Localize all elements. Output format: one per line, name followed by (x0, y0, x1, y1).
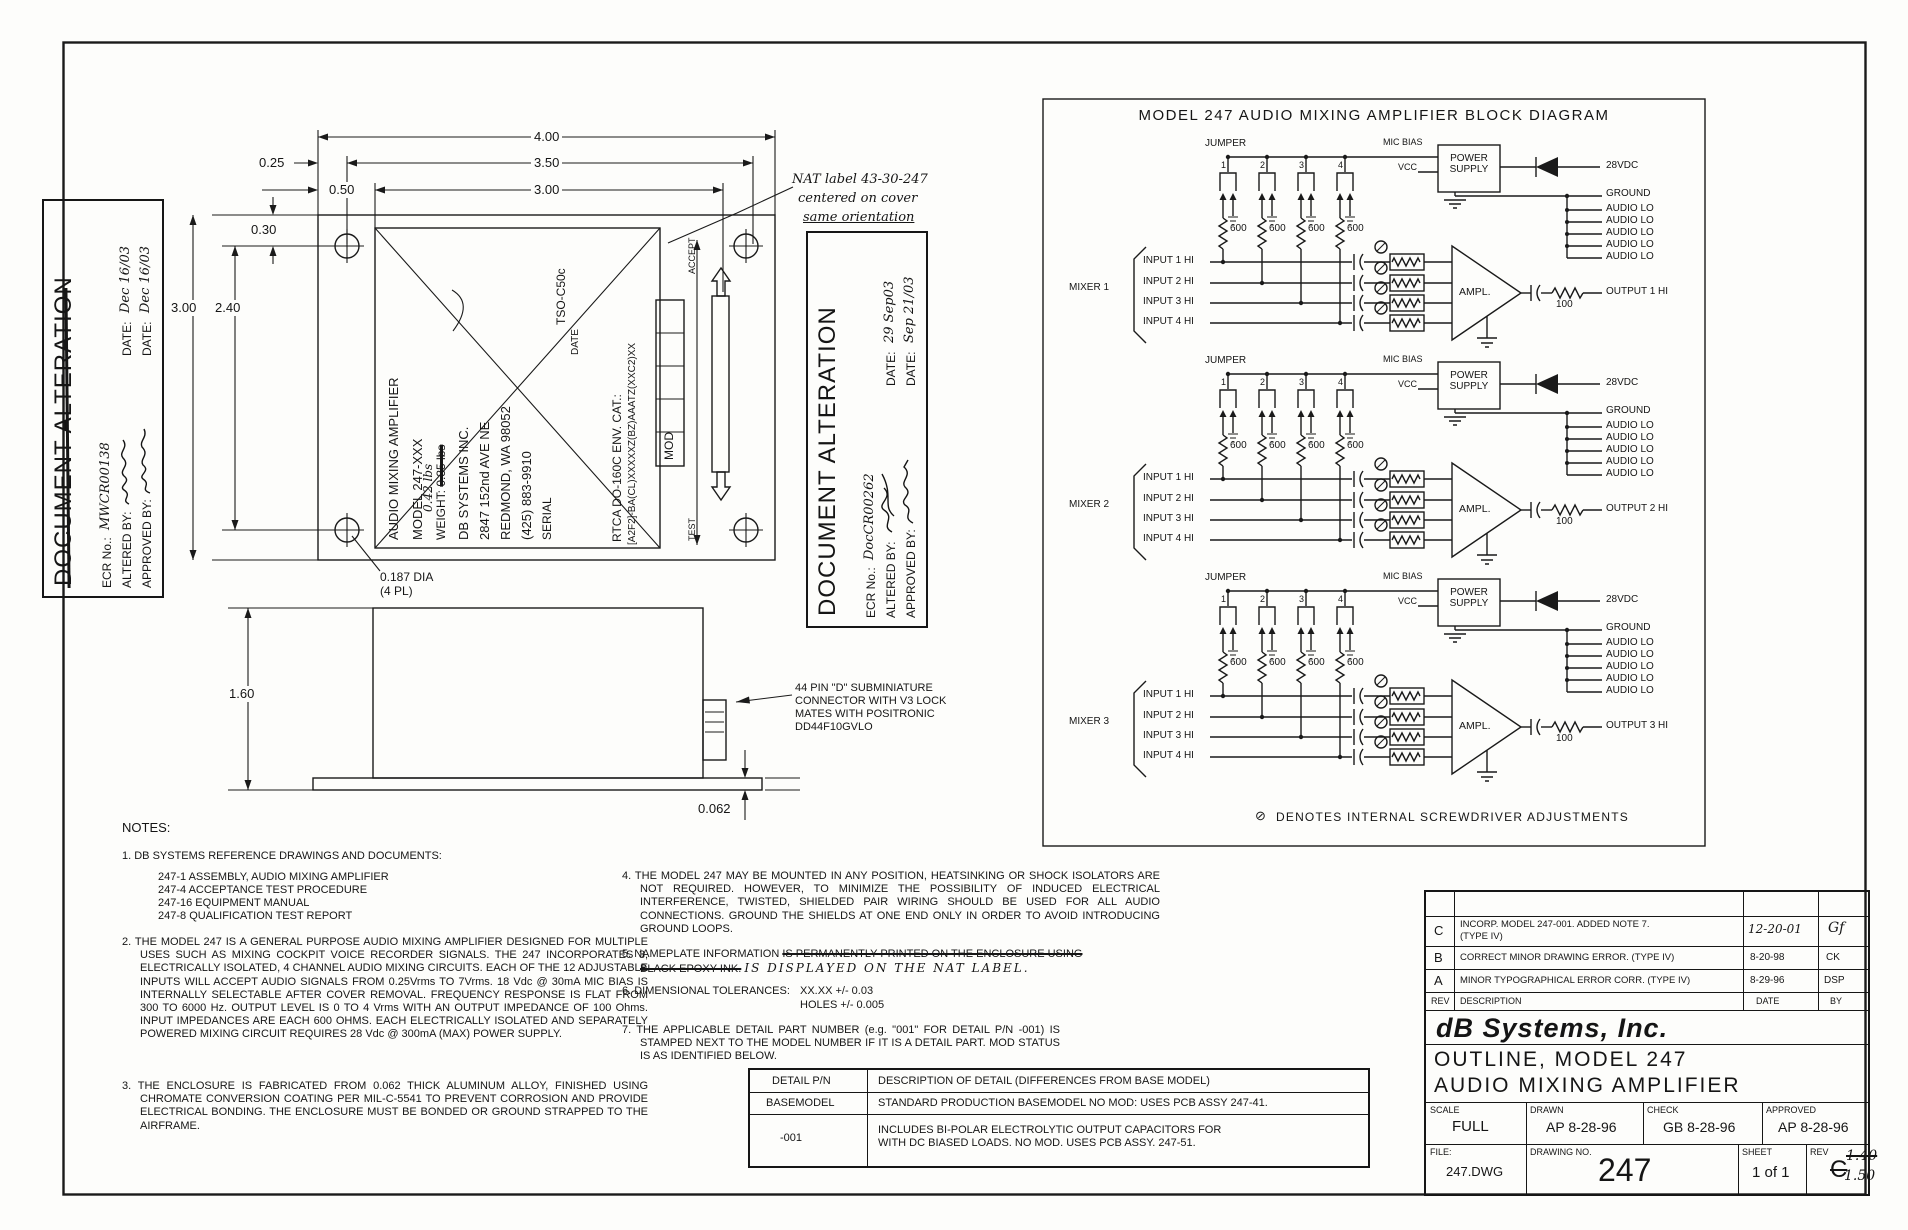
altered-by-label: ALTERED BY: (884, 542, 898, 618)
jumper-1-number: 1 (1221, 594, 1226, 605)
power-supply-box-label: POWERSUPPLY (1439, 587, 1499, 609)
mic-bias-label: MIC BIAS (1383, 354, 1423, 365)
input-2-label: INPUT 2 HI (1143, 276, 1194, 288)
jumper-4-number: 4 (1338, 594, 1343, 605)
check-value: GB 8-28-96 (1663, 1119, 1735, 1136)
rev-by: Gf (1828, 920, 1844, 937)
nat-note-line3: same orientation (803, 210, 914, 226)
rev-by: DSP (1824, 975, 1845, 987)
jumper-label: JUMPER (1205, 355, 1246, 367)
dim-4-00: 4.00 (531, 129, 562, 145)
power-label: POWER (1450, 153, 1488, 164)
accept-label: ACCEPT (687, 237, 698, 274)
plate-address: 2847 152nd AVE NE (477, 422, 493, 540)
notes-heading: NOTES: (122, 820, 170, 836)
note-3: 3. THE ENCLOSURE IS FABRICATED FROM 0.06… (122, 1080, 648, 1133)
plate-weight-struck: 0.35 lbs (434, 445, 448, 487)
input-4-label: INPUT 4 HI (1143, 316, 1194, 328)
date-altered: Dec 16/03 (118, 246, 134, 313)
dim-0-25: 0.25 (256, 155, 287, 171)
approved-by-label: APPROVED BY: (904, 529, 918, 618)
input-1-label: INPUT 1 HI (1143, 689, 1194, 701)
resistor-600-label: 600 (1230, 440, 1247, 452)
titleblock-line (1762, 1102, 1763, 1144)
note-6-tol-b: HOLES +/- 0.005 (800, 999, 884, 1012)
titleblock-line (1526, 1144, 1527, 1194)
sheet-label: SHEET (1742, 1147, 1772, 1158)
hole-qty-note: (4 PL) (380, 584, 413, 598)
ground-label: GROUND (1606, 622, 1650, 634)
input-4-label: INPUT 4 HI (1143, 533, 1194, 545)
jumper-1-number: 1 (1221, 377, 1226, 388)
audio-lo-label: AUDIO LO (1606, 444, 1654, 456)
rev-date: 8-29-96 (1750, 975, 1784, 987)
input-2-label: INPUT 2 HI (1143, 710, 1194, 722)
plate-tso: TSO-C50c (554, 268, 568, 325)
note-5-prefix: 5. NAMEPLATE INFORMATION (622, 948, 782, 960)
audio-lo-label: AUDIO LO (1606, 456, 1654, 468)
titleblock-line (1526, 1102, 1527, 1144)
note-4: 4. THE MODEL 247 MAY BE MOUNTED IN ANY P… (622, 870, 1160, 936)
plate-company: DB SYSTEMS INC. (456, 427, 472, 540)
altered-signature-icon (118, 436, 134, 506)
denotes-note: DENOTES INTERNAL SCREWDRIVER ADJUSTMENTS (1276, 810, 1629, 824)
vcc-label: VCC (1398, 162, 1417, 173)
supply-label: SUPPLY (1450, 381, 1489, 392)
rev-date: 8-20-98 (1750, 952, 1784, 964)
note-5-handwritten: IS DISPLAYED ON THE NAT LABEL. (744, 961, 1029, 975)
approved-by-label: APPROVED BY: (140, 499, 154, 588)
ampl-label: AMPL. (1459, 720, 1491, 733)
detail-pn-table: DETAIL P/N DESCRIPTION OF DETAIL (DIFFER… (748, 1068, 1370, 1168)
detail-desc-header: DESCRIPTION OF DETAIL (DIFFERENCES FROM … (878, 1075, 1210, 1088)
mic-bias-label: MIC BIAS (1383, 571, 1423, 582)
date-label: DATE: (904, 352, 918, 386)
jumper-4-number: 4 (1338, 377, 1343, 388)
approved-value: AP 8-28-96 (1778, 1119, 1849, 1136)
document-alteration-stamp-2: DOCUMENT ALTERATION ECR No.: DocCR00262 … (806, 231, 928, 628)
power-supply-box-label: POWERSUPPLY (1439, 370, 1499, 392)
side-view-drawing (313, 608, 792, 790)
table-divider (867, 1070, 868, 1166)
desc-col-header: DESCRIPTION (1460, 996, 1522, 1007)
resistor-100-label: 100 (1556, 299, 1573, 311)
mixer-circuit-1 (1134, 145, 1602, 347)
plate-env-cat-code: [A2F2]-BA(CL)XXXXXZ(BZ)AAATZ(XXC2)XX (627, 343, 639, 545)
titleblock-line (1643, 1102, 1644, 1144)
resistor-600-label: 600 (1347, 440, 1364, 452)
mixer-name: MIXER 1 (1069, 282, 1109, 294)
rev-letter: B (1434, 950, 1443, 966)
rev-letter: A (1434, 973, 1443, 989)
input-1-label: INPUT 1 HI (1143, 472, 1194, 484)
screwdriver-adjust-icon: ⊘ (1255, 808, 1266, 824)
rev-desc: MINOR TYPOGRAPHICAL ERROR CORR. (TYPE IV… (1460, 975, 1690, 986)
block-diagram-title: MODEL 247 AUDIO MIXING AMPLIFIER BLOCK D… (1043, 107, 1705, 125)
mixer-name: MIXER 2 (1069, 499, 1109, 511)
dim-0-062: 0.062 (698, 801, 731, 817)
table-divider (750, 1114, 1368, 1115)
audio-lo-label: AUDIO LO (1606, 239, 1654, 251)
dim-1-60: 1.60 (226, 686, 257, 702)
note-1-item: 247-4 ACCEPTANCE TEST PROCEDURE (158, 884, 367, 897)
rev-desc: INCORP. MODEL 247-001. ADDED NOTE 7. (1460, 919, 1650, 930)
test-label: TEST (687, 518, 698, 541)
resistor-600-label: 600 (1308, 657, 1325, 669)
drawing-title-line1: OUTLINE, MODEL 247 (1434, 1047, 1687, 1072)
nat-note-line1: NAT label 43-30-247 (792, 172, 928, 188)
note-1-item: 247-8 QUALIFICATION TEST REPORT (158, 910, 352, 923)
date-col-header: DATE (1756, 996, 1779, 1007)
note-2: 2. THE MODEL 247 IS A GENERAL PURPOSE AU… (122, 936, 648, 1042)
resistor-600-label: 600 (1308, 440, 1325, 452)
rev-desc-2: (TYPE IV) (1460, 931, 1503, 942)
dim-3-00-height: 3.00 (168, 300, 199, 316)
nat-note-line2: centered on cover (798, 191, 917, 207)
jumper-2-number: 2 (1260, 377, 1265, 388)
jumper-label: JUMPER (1205, 572, 1246, 584)
titleblock-line (1426, 916, 1868, 917)
detail-pn-header: DETAIL P/N (772, 1075, 831, 1088)
titleblock-line (1806, 1144, 1807, 1194)
drawing-sheet: DOCUMENT ALTERATION ECR No.: MWCR00138 A… (0, 0, 1908, 1230)
date-label: DATE: (140, 322, 154, 356)
ampl-label: AMPL. (1459, 286, 1491, 299)
plate-mod-label: MOD (662, 432, 676, 460)
ampl-label: AMPL. (1459, 503, 1491, 516)
power-label: POWER (1450, 587, 1488, 598)
audio-lo-label: AUDIO LO (1606, 203, 1654, 215)
connector-note-line2: CONNECTOR WITH V3 LOCK (795, 695, 946, 708)
note-1-head: 1. DB SYSTEMS REFERENCE DRAWINGS AND DOC… (122, 850, 442, 863)
audio-lo-label: AUDIO LO (1606, 637, 1654, 649)
titleblock-line (1738, 1144, 1739, 1194)
input-3-label: INPUT 3 HI (1143, 296, 1194, 308)
approved-label: APPROVED (1766, 1105, 1816, 1116)
audio-lo-label: AUDIO LO (1606, 432, 1654, 444)
dim-3-00-width: 3.00 (531, 182, 562, 198)
drawing-no-value: 247 (1598, 1151, 1651, 1189)
rev-letter: C (1434, 923, 1443, 939)
note-5-struck-1: IS PERMANENTLY PRINTED ON THE ENCLOSURE … (782, 948, 1082, 960)
check-label: CHECK (1647, 1105, 1679, 1116)
by-col-header: BY (1830, 996, 1842, 1007)
date-altered: 29 Sep03 (882, 281, 898, 343)
titleblock-line (1818, 892, 1819, 1010)
audio-lo-label: AUDIO LO (1606, 227, 1654, 239)
titleblock-line (1743, 892, 1744, 1010)
date-approved: Dec 16/03 (138, 246, 154, 313)
ecr-label: ECR No.: (864, 567, 878, 618)
file-value: 247.DWG (1446, 1164, 1503, 1180)
drawn-value: AP 8-28-96 (1546, 1119, 1617, 1136)
table-divider (750, 1092, 1368, 1093)
document-alteration-stamp-1: DOCUMENT ALTERATION ECR No.: MWCR00138 A… (42, 199, 164, 598)
jumper-2-number: 2 (1260, 160, 1265, 171)
titleblock-line (1426, 992, 1868, 993)
resistor-100-label: 100 (1556, 733, 1573, 745)
supply-label: SUPPLY (1450, 164, 1489, 175)
audio-lo-label: AUDIO LO (1606, 685, 1654, 697)
plate-weight: WEIGHT: 0.35 lbs (434, 445, 448, 540)
detail-row-pn: BASEMODEL (766, 1097, 834, 1110)
resistor-600-label: 600 (1269, 223, 1286, 235)
jumper-label: JUMPER (1205, 138, 1246, 150)
resistor-600-label: 600 (1347, 657, 1364, 669)
jumper-3-number: 3 (1299, 377, 1304, 388)
jumper-3-number: 3 (1299, 160, 1304, 171)
note-1-item: 247-16 EQUIPMENT MANUAL (158, 897, 309, 910)
input-3-label: INPUT 3 HI (1143, 730, 1194, 742)
audio-lo-label: AUDIO LO (1606, 673, 1654, 685)
titleblock-line (1426, 969, 1868, 970)
company-logo: dB Systems, Inc. (1436, 1012, 1668, 1044)
rev-date: 12-20-01 (1748, 922, 1802, 936)
titleblock-line (1426, 1102, 1868, 1103)
titleblock-line (1426, 1144, 1868, 1145)
mic-bias-label: MIC BIAS (1383, 137, 1423, 148)
scale-value: FULL (1452, 1118, 1489, 1136)
resistor-600-label: 600 (1230, 223, 1247, 235)
file-label: FILE: (1430, 1147, 1452, 1158)
mixer-circuit-3 (1134, 579, 1602, 781)
plate-weight-hand: 0.42 lbs (421, 464, 435, 512)
jumper-2-number: 2 (1260, 594, 1265, 605)
date-label: DATE: (884, 352, 898, 386)
stamp-title: DOCUMENT ALTERATION (814, 306, 843, 616)
mixer-name: MIXER 3 (1069, 716, 1109, 728)
audio-lo-label: AUDIO LO (1606, 649, 1654, 661)
input-4-label: INPUT 4 HI (1143, 750, 1194, 762)
note-5: 5. NAMEPLATE INFORMATION IS PERMANENTLY … (622, 948, 1167, 976)
28vdc-label: 28VDC (1606, 594, 1638, 606)
rev-label: REV (1810, 1147, 1829, 1158)
dim-2-40: 2.40 (212, 300, 243, 316)
title-block: C INCORP. MODEL 247-001. ADDED NOTE 7. (… (1424, 890, 1870, 1196)
resistor-100-label: 100 (1556, 516, 1573, 528)
detail-row-pn: -001 (780, 1132, 802, 1145)
28vdc-label: 28VDC (1606, 160, 1638, 172)
28vdc-label: 28VDC (1606, 377, 1638, 389)
plate-serial-label: SERIAL (540, 497, 554, 540)
ecr-value: DocCR00262 (862, 473, 878, 560)
output-label: OUTPUT 2 HI (1606, 503, 1668, 515)
rev-handwritten-old: 1.40 (1846, 1148, 1877, 1165)
output-label: OUTPUT 3 HI (1606, 720, 1668, 732)
jumper-4-number: 4 (1338, 160, 1343, 171)
titleblock-line (1454, 892, 1455, 1010)
dim-0-30: 0.30 (248, 222, 279, 238)
rev-col-header: REV (1431, 996, 1450, 1007)
resistor-600-label: 600 (1269, 657, 1286, 669)
output-label: OUTPUT 1 HI (1606, 286, 1668, 298)
plate-product: AUDIO MIXING AMPLIFIER (386, 377, 402, 540)
dimension-lines (190, 130, 801, 820)
plate-weight-label: WEIGHT: (434, 490, 448, 540)
resistor-600-label: 600 (1230, 657, 1247, 669)
input-1-label: INPUT 1 HI (1143, 255, 1194, 267)
power-supply-box-label: POWERSUPPLY (1439, 153, 1499, 175)
date-approved: Sep 21/03 (902, 276, 918, 343)
sheet-value: 1 of 1 (1752, 1164, 1790, 1182)
jumper-1-number: 1 (1221, 160, 1226, 171)
note-5-struck-2: BLACK EPOXY INK. (640, 963, 741, 975)
vcc-label: VCC (1398, 379, 1417, 390)
dim-3-50: 3.50 (531, 155, 562, 171)
dim-0-50: 0.50 (326, 182, 357, 198)
input-3-label: INPUT 3 HI (1143, 513, 1194, 525)
detail-row-desc: INCLUDES BI-POLAR ELECTROLYTIC OUTPUT CA… (878, 1124, 1358, 1150)
supply-label: SUPPLY (1450, 598, 1489, 609)
resistor-600-label: 600 (1347, 223, 1364, 235)
ground-label: GROUND (1606, 405, 1650, 417)
audio-lo-label: AUDIO LO (1606, 420, 1654, 432)
note-6-tol-a: XX.XX +/- 0.03 (800, 985, 873, 998)
note-6-head: 6. DIMENSIONAL TOLERANCES: (622, 985, 790, 998)
plate-city: REDMOND, WA 98052 (498, 406, 514, 540)
approved-signature-icon (900, 456, 918, 526)
rev-handwritten-new: 1.50 (1844, 1168, 1875, 1185)
rev-desc: CORRECT MINOR DRAWING ERROR. (TYPE IV) (1460, 952, 1674, 963)
connector-note-line4: DD44F10GVLO (795, 721, 873, 734)
approved-signature-icon (138, 426, 154, 496)
note-1-item: 247-1 ASSEMBLY, AUDIO MIXING AMPLIFIER (158, 871, 389, 884)
drawn-label: DRAWN (1530, 1105, 1564, 1116)
audio-lo-label: AUDIO LO (1606, 251, 1654, 263)
audio-lo-label: AUDIO LO (1606, 215, 1654, 227)
scale-label: SCALE (1430, 1105, 1460, 1116)
ecr-label: ECR No.: (100, 537, 114, 588)
drawing-no-label: DRAWING NO. (1530, 1147, 1592, 1158)
altered-signature-icon (878, 466, 898, 536)
resistor-600-label: 600 (1269, 440, 1286, 452)
plate-date-label: DATE (570, 329, 582, 355)
input-2-label: INPUT 2 HI (1143, 493, 1194, 505)
date-label: DATE: (120, 322, 134, 356)
power-label: POWER (1450, 370, 1488, 381)
mixer-circuit-2 (1134, 362, 1602, 564)
resistor-600-label: 600 (1308, 223, 1325, 235)
hole-dia-note: 0.187 DIA (380, 570, 433, 584)
titleblock-line (1426, 946, 1868, 947)
vcc-label: VCC (1398, 596, 1417, 607)
altered-by-label: ALTERED BY: (120, 512, 134, 588)
connector-note-line1: 44 PIN "D" SUBMINIATURE (795, 682, 933, 695)
plate-env-cat-label: RTCA DO-160C ENV. CAT.: (610, 394, 624, 542)
plate-phone: (425) 883-9910 (519, 451, 535, 540)
drawing-title-line2: AUDIO MIXING AMPLIFIER (1434, 1073, 1741, 1098)
rev-by: CK (1826, 952, 1840, 964)
audio-lo-label: AUDIO LO (1606, 468, 1654, 480)
note-7: 7. THE APPLICABLE DETAIL PART NUMBER (e.… (622, 1024, 1060, 1064)
ecr-value: MWCR00138 (98, 442, 114, 530)
connector-note-line3: MATES WITH POSITRONIC (795, 708, 935, 721)
audio-lo-label: AUDIO LO (1606, 661, 1654, 673)
ground-label: GROUND (1606, 188, 1650, 200)
detail-row-desc: STANDARD PRODUCTION BASEMODEL NO MOD: US… (878, 1097, 1268, 1110)
jumper-3-number: 3 (1299, 594, 1304, 605)
